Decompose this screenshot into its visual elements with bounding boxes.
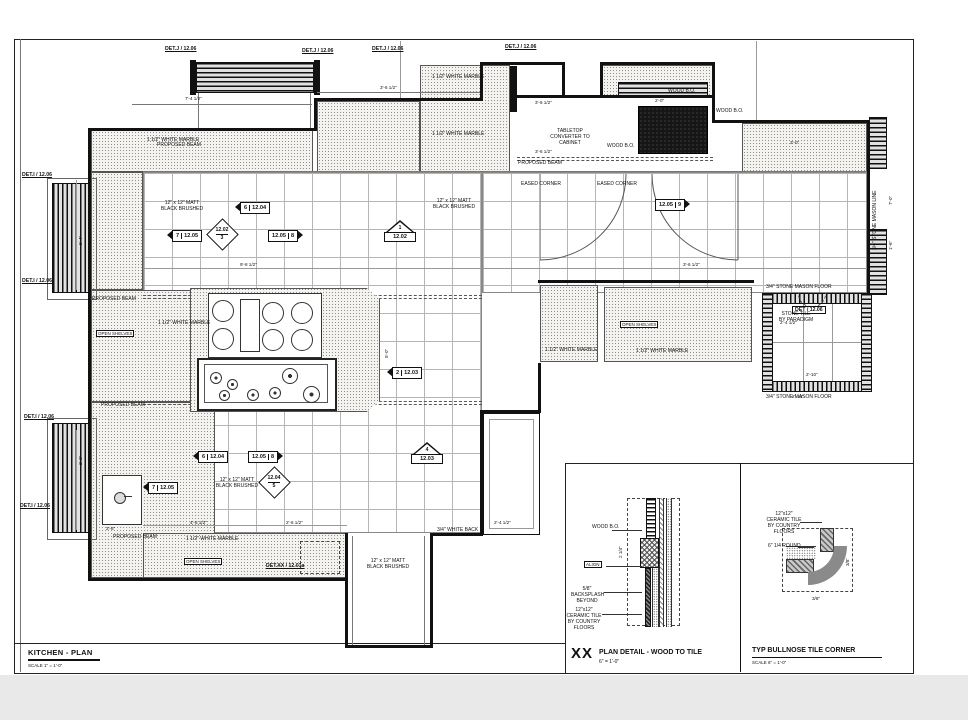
marker-sheet: 12.04: [249, 205, 266, 211]
drawing-sheet: DET.J / 12.06 DET.J / 12.06 DET.J / 12.0…: [0, 0, 968, 720]
plan-note: PROPOSED BEAM: [92, 296, 136, 302]
dimension: 3'-6 1/2": [535, 149, 552, 154]
plan-note: PROPOSED BEAM: [113, 534, 157, 540]
counter-top-mid: [317, 101, 420, 172]
dimension: 3'-6 1/2": [380, 85, 397, 90]
window-jamb-right: [314, 60, 320, 95]
plan-note: WOOD B.O.: [607, 143, 635, 149]
wall-top-c: [480, 62, 564, 65]
range-knob: [247, 389, 259, 401]
marker-sheet: 12.02: [384, 232, 416, 242]
dim-line: [132, 104, 312, 105]
plan-note: 12" x 12" MATT BLACK BRUSHED: [366, 558, 410, 570]
dim-line: [483, 268, 867, 269]
marker-number: 8: [268, 454, 274, 460]
dim-line: [143, 268, 482, 269]
dimension: 3'-0": [790, 140, 799, 145]
detail1-wood-blocking: [646, 498, 656, 542]
leader-line: [606, 566, 642, 567]
plan-note: 12" x 12" MATT BLACK BRUSHED: [160, 200, 204, 212]
dimension: 2 1/4": [618, 546, 623, 558]
dim-line-vert: [76, 180, 77, 290]
dim-line-vert: [76, 430, 77, 530]
desk-background: [0, 675, 968, 720]
block-inner-line: [352, 536, 353, 645]
elevation-marker: 712.05: [148, 482, 178, 494]
dimension: 2'-6 1/2": [286, 520, 303, 525]
elevation-marker: 12.059: [655, 199, 685, 211]
dimension: 9'-8 1/2": [240, 262, 257, 267]
dimension: 7'-0": [888, 196, 893, 205]
elevation-marker: 712.05: [172, 230, 202, 242]
detail1-label: 5/8" BACKSPLASH BEYOND: [571, 586, 603, 604]
window-jamb-left: [190, 60, 196, 95]
dim-line: [143, 525, 347, 526]
tall-appliance-inner: [489, 419, 534, 529]
plan-note: PROPOSED BEAM: [157, 142, 201, 148]
wall-right: [867, 120, 870, 298]
door-jamb-block: [510, 66, 517, 112]
faucet: [114, 492, 126, 504]
counter-top-left: [91, 130, 313, 172]
dimension: 3'-6 1/2": [535, 100, 552, 105]
elevation-marker: 12.058: [268, 230, 298, 242]
dimension: 2'-10": [792, 394, 804, 399]
plan-note: EASED CORNER: [521, 181, 561, 187]
marker-sheet: 12.03: [401, 370, 418, 376]
elevation-marker: 212.03: [392, 367, 422, 379]
wall-c-right: [562, 62, 565, 98]
plan-note: WOOD B.O.: [716, 108, 744, 114]
leader-line: [612, 530, 642, 531]
detail-callout-xx: DET.XX / 12.01a: [266, 563, 304, 569]
marker-sheet: 12.04: [207, 454, 224, 460]
detail2-title-underline: [752, 657, 882, 658]
marker-number: 3: [221, 235, 224, 242]
dimension: 2'-4 1/2": [494, 520, 511, 525]
detail1-wood-end: [640, 538, 659, 568]
wall-e-link: [712, 120, 744, 123]
window-right-upper: [869, 117, 887, 169]
plan-note: 3/4" WHITE BACK: [437, 527, 478, 533]
hearth-block: [638, 106, 708, 154]
marker-sheet: 12.05: [272, 233, 286, 239]
range-knob: [303, 386, 320, 403]
plan-note: 1 1/2" WHITE MARBLE: [432, 131, 484, 137]
triangle-shape: 1: [386, 220, 414, 232]
counter-front-edge: [143, 171, 867, 172]
plan-note: 3/4" STONE MASON FLOOR: [766, 284, 832, 290]
wall-g-right: [430, 533, 433, 648]
marker-number: 5: [273, 483, 276, 490]
dimension: 4'-6 1/2": [190, 520, 207, 525]
detail1-label: WOOD B.O.: [592, 524, 620, 530]
plan-note-boxed: OPEN SHELVES: [96, 330, 134, 337]
tile-room-gridline: [773, 342, 861, 343]
wall-bottom-band: [88, 578, 348, 581]
cooktop-burner: [212, 300, 234, 322]
marker-number: 6: [244, 205, 247, 211]
dimension: 5'-4": [78, 236, 83, 245]
sheet-scale: SCALE 1" = 1'-0": [28, 663, 62, 668]
plan-note: 1 1/2" WHITE MARBLE: [432, 74, 484, 80]
dimension: 3/8": [812, 596, 820, 601]
detail1-tile-layer: [659, 498, 664, 627]
wall-d-left: [600, 62, 603, 98]
window-top-left: [196, 62, 314, 93]
marker-number: 8: [288, 233, 294, 239]
dimension: 7'-4 1/2": [185, 96, 202, 101]
wall-d-right: [712, 62, 715, 123]
detail-callout-left: DET.I / 12.06: [20, 503, 50, 509]
elevation-marker-triangle: 4 12.03: [411, 442, 443, 464]
detail1-setting-bed: [666, 498, 672, 627]
counter-left-upper: [91, 172, 143, 290]
plan-note: EASED CORNER: [597, 181, 637, 187]
elevation-marker: 612.04: [240, 202, 270, 214]
dashed-appliance-outline: [300, 541, 340, 574]
marker-number: 7: [176, 233, 179, 239]
detail2-label: 6" 1/4 ROUND: [768, 543, 801, 549]
tile-room-right: [861, 293, 872, 392]
sheet-title-underline: [28, 659, 100, 661]
elevation-marker-diamond: 12.023: [206, 218, 238, 250]
detail-callout-top: DET.J / 12.06: [505, 44, 536, 50]
detail1-backsplash: [645, 568, 651, 627]
detail1-id: XX: [571, 645, 593, 662]
wall-g-link: [433, 533, 483, 536]
door-swing-arc: [652, 174, 739, 261]
dimension: 2'-0": [78, 456, 83, 465]
detail-callout-left: DET.I / 12.06: [22, 278, 52, 284]
plan-note: 1 1/2" WHITE MARBLE: [545, 347, 597, 353]
detail-callout-left: DET.I / 12.06: [24, 414, 54, 420]
extension-line: [756, 41, 757, 120]
wall-nook-top: [517, 95, 715, 98]
marker-number: 6: [202, 454, 205, 460]
elevation-marker: 12.058: [248, 451, 278, 463]
elevation-marker: 612.04: [198, 451, 228, 463]
counter-top-deep: [420, 65, 510, 172]
cooktop-griddle: [240, 299, 260, 352]
faucet-spout: [124, 496, 132, 497]
marker-number: 1: [386, 225, 414, 231]
detail-callout-top: DET.J / 12.06: [165, 46, 196, 52]
detail2-label: 12"x12" CERAMIC TILE BY COUNTRY FLOORS: [764, 511, 804, 535]
triangle-shape: 4: [413, 442, 441, 454]
marker-number: 9: [675, 202, 681, 208]
plan-note-boxed: OPEN SHELVES: [620, 321, 658, 328]
cooktop-burner: [212, 328, 234, 350]
wall-top-a: [88, 128, 316, 131]
marker-sheet: 12.03: [411, 454, 443, 464]
wall-cab-link: [538, 363, 541, 413]
elevation-marker-triangle: 1 12.02: [384, 220, 416, 242]
dimension: 1'-6": [888, 241, 893, 250]
plan-note: 1 1/2" WHITE MARBLE: [636, 348, 688, 354]
detail-callout-top: DET.J / 12.06: [372, 46, 403, 52]
tile-room-bottom: [762, 381, 872, 392]
cooktop-burner: [262, 302, 284, 324]
marker-number: 7: [152, 485, 155, 491]
wall-cab-back: [538, 280, 754, 283]
counter-right-run: [742, 123, 867, 172]
plan-note: WOOD B.O.: [668, 88, 696, 94]
plan-note: 12" x 12" MATT BLACK BRUSHED: [215, 477, 259, 489]
marker-number: 4: [413, 447, 441, 453]
door-swing-arc: [540, 174, 627, 261]
sheet-inner-border: [20, 39, 21, 672]
detail1-title: PLAN DETAIL - WOOD TO TILE: [599, 649, 702, 656]
marker-sheet: 12.02: [216, 227, 229, 235]
marker-number: 2: [396, 370, 399, 376]
tile-room-left: [762, 293, 773, 392]
detail-callout-top: DET.J / 12.06: [302, 48, 333, 54]
range-knob: [282, 368, 298, 384]
marker-sheet: 12.05: [157, 485, 174, 491]
elevation-marker-diamond: 12.045: [258, 466, 290, 498]
detail-callout-left: DET.I / 12.06: [22, 172, 52, 178]
range-knob: [227, 379, 238, 390]
detail1-scale: 6" = 1'-0": [599, 659, 619, 665]
detail-box-divider: [740, 463, 741, 672]
plan-note: 1 1/2" WHITE MARBLE: [158, 320, 210, 326]
wall-top-e: [742, 120, 870, 123]
range-knob: [210, 372, 222, 384]
dimension: 2'-0": [655, 98, 664, 103]
dimension: 5'-0": [384, 349, 389, 358]
block-inner-line: [424, 536, 425, 645]
dimension: 3'-6 1/2": [683, 262, 700, 267]
plan-note: PROPOSED BEAM: [101, 402, 145, 408]
wall-step-b: [314, 98, 317, 131]
window-left-upper: [52, 183, 90, 293]
leader-line: [602, 614, 642, 615]
dimension: 2'-10": [806, 372, 818, 377]
detail1-label: 12"x12" CERAMIC TILE BY COUNTRY FLOORS: [565, 607, 603, 631]
marker-sheet: 12.04: [268, 475, 281, 483]
dimension: 3/8": [845, 558, 850, 566]
range-knob: [269, 387, 281, 399]
cooktop-burner: [262, 329, 284, 351]
detail1-mortar: [652, 568, 659, 627]
marker-sheet: 12.05: [181, 233, 198, 239]
wall-g-left: [345, 533, 348, 648]
sheet-title: KITCHEN - PLAN: [28, 648, 93, 657]
marker-sheet: 12.05: [659, 202, 673, 208]
cooktop-burner: [291, 302, 313, 324]
dim-line: [317, 92, 480, 93]
cooktop-burner: [291, 329, 313, 351]
dimension: 2'-6": [106, 526, 115, 531]
wall-top-d: [600, 62, 715, 65]
title-strip-line: [14, 643, 565, 644]
detail1-label: ALIGN: [584, 561, 602, 568]
detail2-title: TYP BULLNOSE TILE CORNER: [752, 647, 855, 654]
leader-line: [604, 592, 642, 593]
marker-sheet: 12.05: [252, 454, 266, 460]
plan-note: 1 1/2" WHITE MARBLE: [186, 536, 238, 542]
detail2-scale: SCALE 6" = 1'-0": [752, 660, 786, 665]
plan-note: 12" x 12" MATT BLACK BRUSHED: [432, 198, 476, 210]
wall-top-b: [314, 98, 482, 101]
wall-left: [88, 128, 91, 581]
plan-note: TABLETOP CONVERTER TO CABINET: [543, 128, 597, 146]
range-knob: [219, 390, 230, 401]
dimension: 2'-4 1/2": [780, 320, 797, 325]
wall-step-c: [480, 62, 483, 101]
window-connector-b: [310, 93, 311, 130]
wall-g-bottom: [345, 645, 433, 648]
plan-note: PROPOSED BEAM: [518, 160, 562, 166]
plan-note-boxed: OPEN SHELVES: [184, 558, 222, 565]
window-left-lower: [52, 423, 90, 533]
plan-note: 3/4" STONE MASON LINE: [872, 191, 878, 250]
